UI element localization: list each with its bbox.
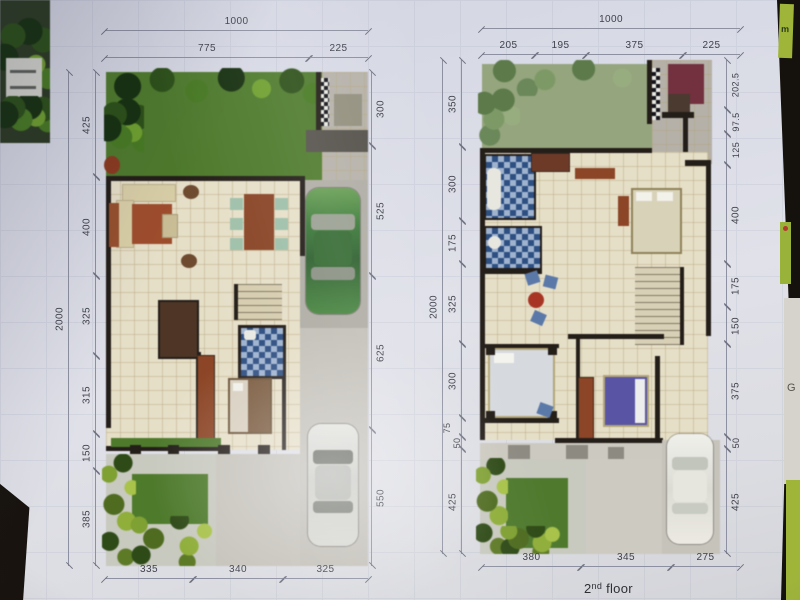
wall [106,176,302,181]
wardrobe [531,153,570,172]
porch-step [334,94,362,126]
dim-line: 125 [726,134,727,165]
dim-label: 380 [523,552,541,563]
dim-label: 425 [731,493,742,511]
checker-tile-strip [320,78,329,126]
front-path [216,454,300,566]
caption-ordinal: nd [592,581,603,591]
floor-plan-2 [480,60,720,554]
dining-chair [230,218,243,230]
kitchen-counter [197,355,215,445]
dim-line: 195 [535,54,586,55]
toilet [244,330,256,340]
dresser [578,377,594,442]
stray-letter-g: G [787,382,796,394]
dim-line: 2000 [442,60,443,554]
adjacent-page-tab [786,480,800,600]
bed-post [548,346,557,355]
dim-line: 150 [726,307,727,344]
dim-label: 50 [731,438,741,449]
car-silver [308,424,358,546]
plan2-caption: 2nd floor [584,581,633,596]
fence-post [168,445,179,454]
wall [282,372,286,450]
dim-line: 300 [461,344,462,418]
plant-pot [181,254,197,268]
dim-label: 225 [330,43,348,54]
floor-plan-1 [106,72,368,566]
bathtub [487,168,501,210]
dim-label: 350 [448,95,459,113]
dim-line: 425 [461,449,462,554]
photo-of-floor-plans: m G [0,0,800,600]
wall [706,160,711,336]
dim-line: 275 [671,566,740,567]
pillow [635,379,645,423]
dim-label: 345 [617,552,635,563]
dim-label: 202.5 [731,73,741,98]
shrubs [496,526,560,554]
dim-line: 300 [371,72,372,146]
dim-label: 125 [731,141,741,157]
pillow [494,353,514,363]
stairs [234,284,282,320]
foliage [0,96,50,143]
dim-label: 325 [82,307,93,325]
plant-pot [183,185,199,199]
car-white [667,434,713,544]
corner-photo-fragment [0,0,50,143]
dim-line: 425 [95,72,96,177]
dining-table [244,194,274,250]
building-detail [10,70,36,73]
dim-line: 385 [95,471,96,566]
stray-letter-m: m [781,24,789,34]
bed [228,378,272,434]
hedge [111,438,221,447]
fence-post [130,445,141,454]
dim-label: 375 [626,40,644,51]
dim-line: 425 [726,449,727,554]
dim-line: 205 [482,54,535,55]
dim-line: 175 [461,221,462,264]
dim-label: 1000 [225,16,249,27]
dim-label: 150 [731,317,742,335]
wardrobe [575,168,615,179]
dim-label: 340 [229,564,247,575]
tv-cabinet [109,203,119,247]
dim-label: 315 [82,386,93,404]
dim-label: 425 [82,116,93,134]
dim-line: 325 [283,578,368,579]
dim-label: 300 [448,175,459,193]
dim-label: 205 [500,40,518,51]
dim-label: 425 [448,493,459,511]
dim-label: 175 [448,234,459,252]
dim-line: 202.5 [726,60,727,110]
dim-line: 97.5 [726,110,727,134]
wall [316,72,321,134]
adjacent-page-tab [780,222,791,284]
building-detail [10,86,36,89]
dim-line: 350 [461,60,462,147]
dim-label: 2000 [429,295,440,319]
pillow [636,192,652,201]
dim-label: 150 [82,444,93,462]
dining-chair [230,198,243,210]
dim-label: 97.5 [731,112,741,131]
dim-line: 345 [581,566,671,567]
dim-label: 775 [198,43,216,54]
roof-plants [478,84,520,148]
adjacent-page-tab: m [778,4,794,58]
dim-line: 400 [726,165,727,264]
cabinet [668,94,690,112]
bed [631,188,682,254]
dim-line: 400 [95,177,96,276]
wall [655,356,660,440]
dim-line: 175 [726,264,727,307]
balcony-post [608,447,624,459]
dim-label: 550 [376,489,387,507]
dim-label: 375 [731,382,742,400]
dim-line: 325 [95,276,96,356]
sink [488,236,501,249]
pillow [657,192,673,201]
coffee-table [162,214,178,238]
car-green [306,188,360,314]
wall [647,60,652,124]
wall [300,176,305,256]
dim-label: 325 [317,564,335,575]
dim-line: 525 [371,146,372,276]
dim-label: 300 [376,100,387,118]
dim-label: 325 [448,295,459,313]
dim-label: 195 [552,40,570,51]
bed-post [486,346,495,355]
dim-label: 525 [376,202,387,220]
dim-label: 2000 [55,307,66,331]
dim-line: 300 [461,147,462,221]
dim-line: 1000 [482,28,740,29]
dim-label: 400 [731,206,742,224]
dim-line: 75 [461,418,462,437]
dim-line: 775 [105,57,309,58]
pillow [233,383,243,391]
dim-line: 380 [482,566,581,567]
front-path [586,459,662,554]
wall [685,160,708,166]
bathroom [484,226,542,274]
dining-chair [230,238,243,250]
checker-tile-strip [652,68,660,120]
dim-line: 2000 [68,72,69,566]
dim-label: 75 [442,422,452,433]
dim-label: 275 [697,552,715,563]
dim-label: 335 [140,564,158,575]
dining-chair [275,238,288,250]
dim-label: 300 [448,372,459,390]
dim-line: 1000 [105,30,368,31]
closet-room [158,300,199,359]
dim-label: 225 [703,40,721,51]
dining-chair [275,218,288,230]
dim-label: 385 [82,510,93,528]
dim-line: 375 [586,54,683,55]
bed-blanket [248,380,270,432]
wall [662,112,694,118]
dim-line: 150 [95,434,96,471]
dim-line: 225 [683,54,740,55]
balcony-post [566,445,588,459]
dim-line: 335 [105,578,193,579]
dim-label: 625 [376,344,387,362]
dim-line: 315 [95,356,96,434]
dim-label: 400 [82,218,93,236]
caption-number: 2 [584,581,592,596]
red-dot [783,226,788,231]
dim-line: 375 [726,344,727,437]
shrubs [120,516,216,566]
dim-line: 625 [371,276,372,430]
planter-pot [104,156,120,174]
dim-line: 225 [309,57,368,58]
bed-purple [603,375,649,427]
caption-word: floor [606,581,633,596]
porch-shadow [306,130,368,152]
wardrobe [618,196,629,226]
dim-label: 175 [731,277,742,295]
adjacent-page-edge: G [784,298,800,484]
dining-chair [275,198,288,210]
dim-line: 325 [461,264,462,344]
wall [485,418,559,423]
balcony-post [508,445,530,459]
round-table [528,292,544,308]
dim-line: 550 [371,430,372,566]
dim-label: 1000 [599,14,623,25]
dim-line: 340 [193,578,283,579]
wall [568,334,664,339]
